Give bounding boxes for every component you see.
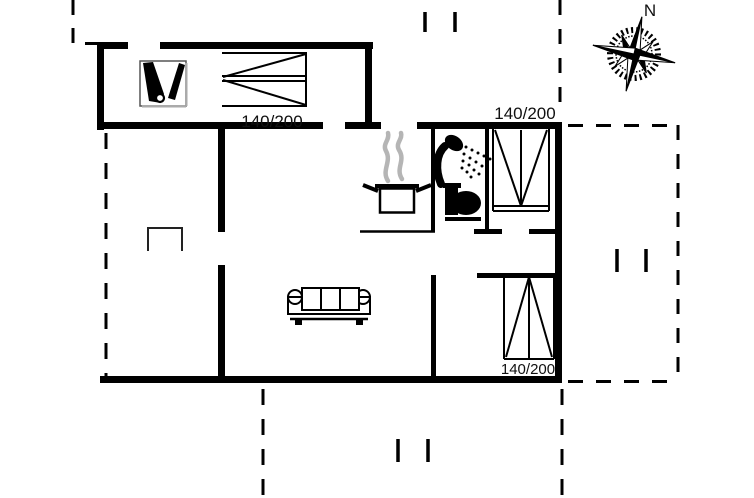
wall [555,122,562,382]
terrace-dash-mark [425,12,455,32]
toilet-icon [443,183,481,221]
wall [345,122,381,129]
bed-icon [504,275,554,359]
wall [97,42,104,130]
wall [529,229,562,234]
wall [431,129,435,232]
compass-north-label: N [644,1,656,20]
wall [474,229,502,234]
bed-size-label: 140/200 [241,112,302,131]
compass-rose-icon: N [585,1,683,100]
steam-icon [385,133,402,181]
floor-plan-drawing: 140/200 140/200 140/200 [0,0,754,498]
bed-size-label: 140/200 [494,104,555,123]
garden-table-icon [147,228,183,251]
wall [218,265,225,376]
bed-icon [493,129,549,211]
wall [365,47,372,124]
wall [431,275,436,376]
terrace-dash-marks [398,12,646,462]
floor-plan-page: 140/200 140/200 140/200 [0,0,754,498]
wall [485,129,489,232]
cooking-pot-icon [363,184,431,213]
wall [160,42,373,49]
wall [417,122,562,129]
terrace-dash-mark [617,249,646,272]
terrace-dash-mark [398,439,428,462]
wood-stove-icon [140,61,187,107]
wall [477,273,562,278]
wall [100,376,562,383]
wall [218,129,225,232]
bed-size-label: 140/200 [501,361,555,378]
bed-icon [222,53,307,106]
shower-icon [437,132,491,184]
sofa-icon [288,288,370,324]
